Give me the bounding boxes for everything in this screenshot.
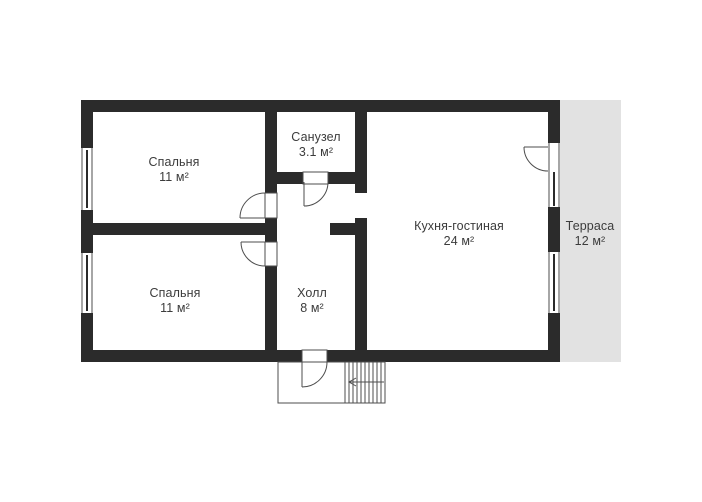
door-bathroom	[303, 172, 328, 206]
room-label-kitchen-living: Кухня-гостиная	[414, 219, 504, 233]
wall-kitchen-stub	[330, 223, 355, 235]
wall-bathroom-bottom-seg1	[277, 172, 303, 184]
door-swing-arc	[524, 147, 548, 171]
room-label-bathroom: Санузел	[291, 130, 340, 144]
room-label-hall: Холл	[297, 286, 327, 300]
floor-plan-page: Спальня 11 м² Санузел 3.1 м² Спальня 11 …	[0, 0, 702, 502]
room-label-terrace: Терраса	[566, 219, 615, 233]
wall-bathroom-right	[355, 112, 367, 193]
wall-right-seg1	[548, 100, 560, 143]
wall-bedrooms-hall-seg3	[265, 266, 277, 350]
room-area-bedroom-2: 11 м²	[160, 301, 190, 315]
porch	[278, 362, 385, 403]
wall-bedrooms-hall-seg1	[265, 112, 277, 193]
window-kitchen-upper	[548, 143, 560, 207]
room-label-bedroom-1: Спальня	[149, 155, 200, 169]
floor-plan-drawing: Спальня 11 м² Санузел 3.1 м² Спальня 11 …	[0, 0, 702, 502]
room-area-hall: 8 м²	[300, 301, 324, 315]
wall-top	[81, 100, 560, 112]
wall-left-seg2	[81, 210, 93, 253]
door-entrance	[302, 350, 327, 387]
wall-bottom-seg2	[327, 350, 560, 362]
door-swing-arc	[304, 182, 328, 206]
room-labels: Спальня 11 м² Санузел 3.1 м² Спальня 11 …	[149, 130, 615, 315]
door-terrace	[524, 147, 548, 171]
door-bedroom-1	[240, 193, 277, 218]
door-swing-arc	[241, 242, 265, 266]
door-leaf-closed	[303, 172, 328, 184]
room-area-bedroom-1: 11 м²	[159, 170, 189, 184]
wall-right-seg2	[548, 207, 560, 252]
window-kitchen-lower	[548, 252, 560, 313]
door-leaf-closed	[265, 242, 277, 266]
room-area-kitchen-living: 24 м²	[444, 234, 475, 248]
wall-hall-kitchen	[355, 218, 367, 350]
door-leaf-closed	[302, 350, 327, 362]
wall-bedroom-divider	[93, 223, 265, 235]
door-bedroom-2	[241, 242, 277, 266]
room-area-terrace: 12 м²	[575, 234, 606, 248]
door-swing-arc	[240, 193, 265, 218]
wall-left-seg1	[81, 100, 93, 148]
stairs	[345, 362, 384, 403]
window-bedroom-2	[81, 253, 93, 313]
room-area-bathroom: 3.1 м²	[299, 145, 333, 159]
door-swing-arc	[302, 362, 327, 387]
window-bedroom-1	[81, 148, 93, 210]
room-label-bedroom-2: Спальня	[150, 286, 201, 300]
wall-bottom-seg1	[81, 350, 302, 362]
wall-bedrooms-hall-seg2	[265, 218, 277, 242]
wall-right-seg3	[548, 313, 560, 362]
door-leaf-closed	[265, 193, 277, 218]
